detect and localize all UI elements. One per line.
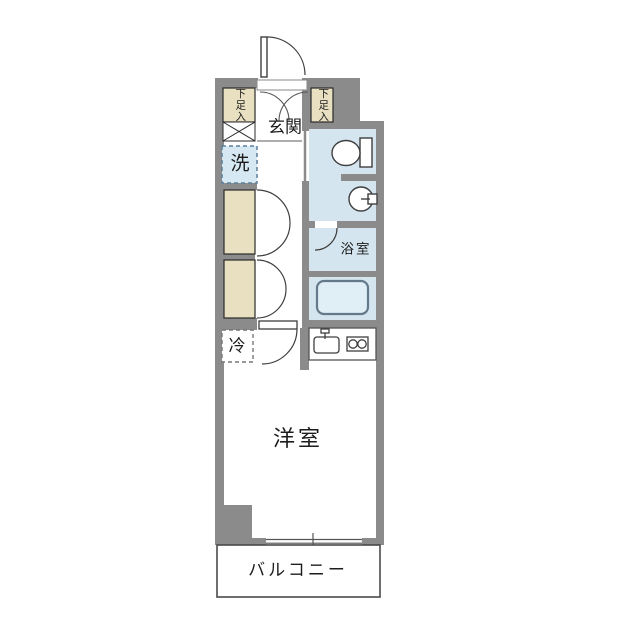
corner-pillar <box>215 505 252 545</box>
bathtub-icon <box>317 281 368 314</box>
closet-bottom <box>224 260 255 318</box>
room-door <box>259 321 297 364</box>
room-label-western-room: 洋室 <box>273 428 323 450</box>
closet-top <box>224 190 255 254</box>
entrance-door <box>257 37 307 90</box>
floor-plan-canvas: 玄関 下足入 下足入 洗 浴室 冷 洋室 バルコニー <box>0 0 640 640</box>
room-label-shoe-left: 下足入 <box>234 88 245 123</box>
room-label-shoe-right: 下足入 <box>317 88 328 123</box>
entrance-threshold <box>257 80 307 90</box>
room-label-bathroom: 浴室 <box>341 242 372 256</box>
room-label-fridge: 冷 <box>229 338 246 355</box>
room-label-balcony: バルコニー <box>248 562 348 579</box>
toilet-icon <box>332 138 372 167</box>
room-label-washer: 洗 <box>230 155 249 174</box>
closet-door-arcs <box>257 190 290 318</box>
room-label-genkan: 玄関 <box>268 119 302 136</box>
pipe-space-box <box>223 122 255 141</box>
